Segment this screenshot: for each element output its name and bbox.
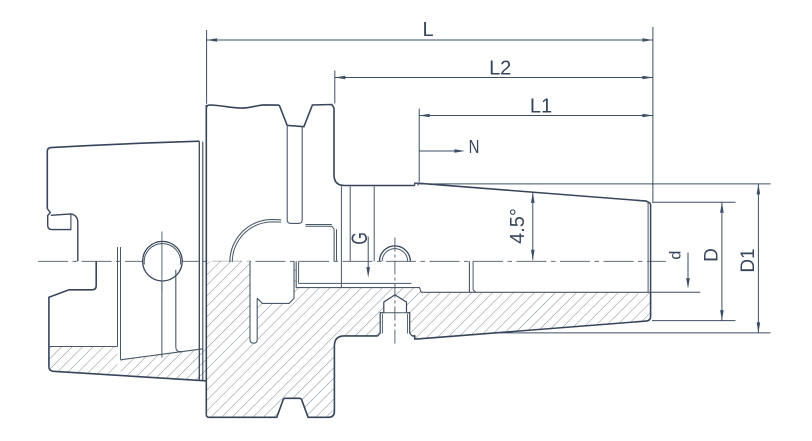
svg-text:D1: D1: [738, 248, 759, 272]
svg-text:L2: L2: [489, 58, 511, 80]
svg-text:L: L: [422, 19, 433, 41]
svg-text:N: N: [469, 137, 480, 157]
svg-text:G: G: [347, 232, 372, 245]
svg-text:L1: L1: [530, 96, 552, 118]
svg-text:4.5°: 4.5°: [507, 208, 529, 244]
svg-text:d: d: [667, 251, 684, 260]
svg-text:D: D: [702, 248, 723, 262]
